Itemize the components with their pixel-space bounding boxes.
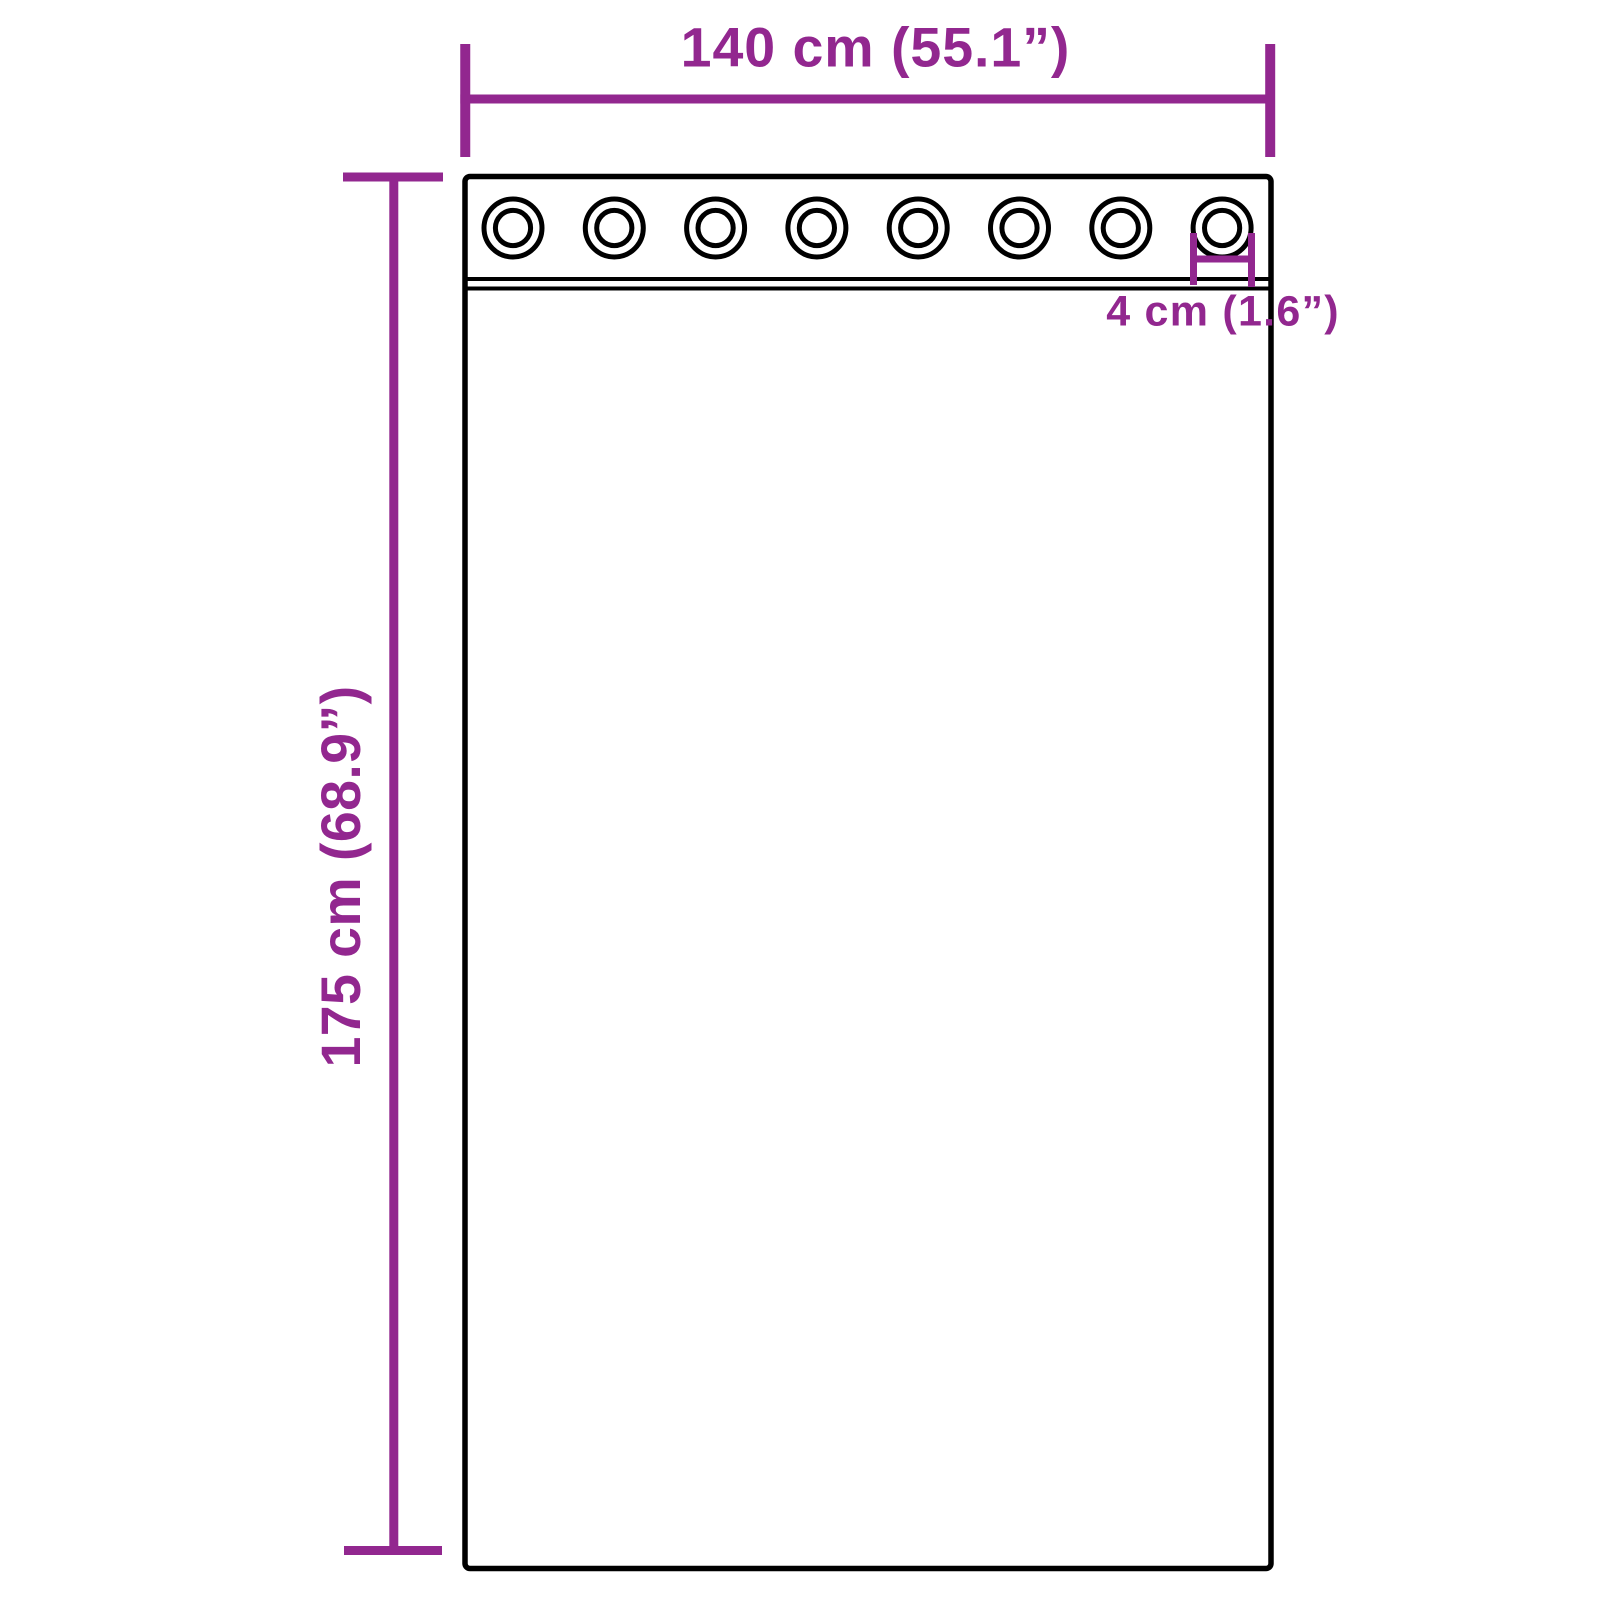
svg-text:4 cm (1.6”): 4 cm (1.6”) <box>1106 288 1340 336</box>
svg-text:140 cm (55.1”): 140 cm (55.1”) <box>681 17 1071 79</box>
svg-text:175 cm (68.9”): 175 cm (68.9”) <box>310 686 372 1068</box>
